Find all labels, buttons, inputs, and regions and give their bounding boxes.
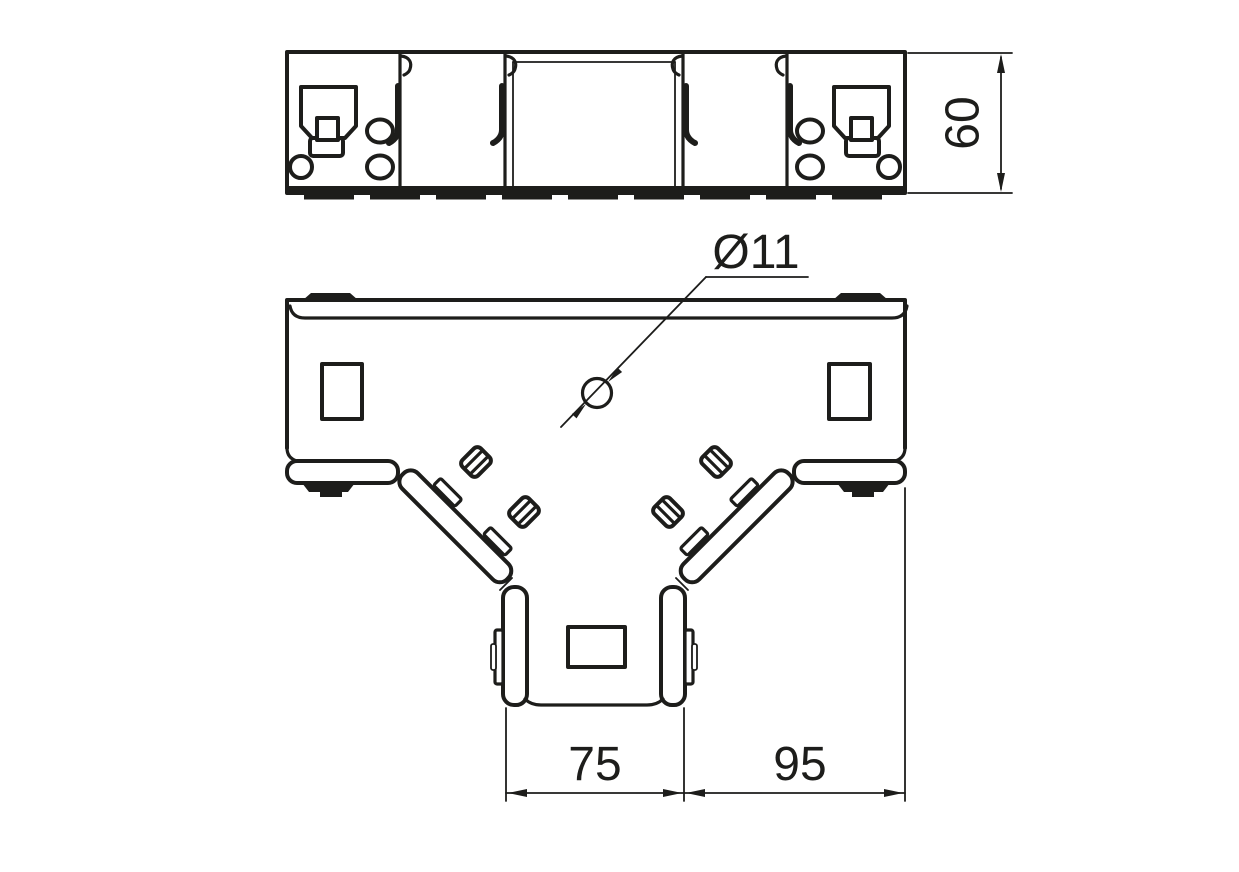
diagonal-rail-right bbox=[677, 466, 797, 586]
arrowhead bbox=[572, 404, 586, 418]
plan-outline bbox=[287, 300, 905, 448]
technical-drawing: 60 bbox=[0, 0, 1239, 872]
side-width-label: 95 bbox=[773, 738, 826, 791]
slot-left bbox=[322, 364, 362, 419]
branch-rail-right bbox=[661, 587, 685, 705]
hole-callout: Ø11 bbox=[561, 226, 808, 427]
flange-tab bbox=[837, 483, 890, 492]
plan-view bbox=[287, 293, 907, 705]
arrowhead bbox=[608, 368, 622, 382]
flange-tab bbox=[302, 483, 355, 492]
edge-tab bbox=[833, 293, 888, 300]
hole-diameter-label: Ø11 bbox=[712, 226, 799, 279]
louver bbox=[507, 495, 541, 529]
arrowhead bbox=[686, 789, 705, 797]
branch-slot bbox=[568, 627, 625, 667]
arrowhead-down bbox=[997, 173, 1005, 192]
edge-tab bbox=[303, 293, 358, 300]
arrowhead bbox=[663, 789, 682, 797]
front-view bbox=[287, 52, 905, 197]
flange-left bbox=[287, 461, 398, 483]
height-dimension: 60 bbox=[908, 53, 1012, 193]
branch-bottom-edge bbox=[525, 699, 663, 705]
front-view-outline bbox=[287, 52, 905, 193]
height-dimension-label: 60 bbox=[937, 96, 990, 149]
flange-tab-small bbox=[852, 492, 874, 497]
louver bbox=[699, 445, 733, 479]
slot-right bbox=[829, 364, 870, 419]
louver bbox=[651, 495, 685, 529]
corner-curve bbox=[895, 448, 905, 461]
arrowhead bbox=[884, 789, 903, 797]
corner-curve bbox=[287, 448, 297, 461]
branch-side-tab-small bbox=[491, 644, 496, 670]
arrowhead-up bbox=[997, 54, 1005, 73]
flange-tab-small bbox=[320, 492, 342, 497]
bottom-band bbox=[287, 186, 905, 194]
mounting-hole bbox=[583, 379, 612, 408]
top-flange-inner-line bbox=[290, 306, 907, 318]
diagonal-rail-left bbox=[395, 466, 515, 586]
arrowhead bbox=[508, 789, 527, 797]
drawing-canvas: 60 bbox=[0, 0, 1239, 872]
branch-side-tab-small bbox=[692, 644, 697, 670]
flange-right bbox=[794, 461, 905, 483]
branch-rail-left bbox=[503, 587, 527, 705]
branch-width-label: 75 bbox=[568, 738, 621, 791]
louver bbox=[459, 445, 493, 479]
